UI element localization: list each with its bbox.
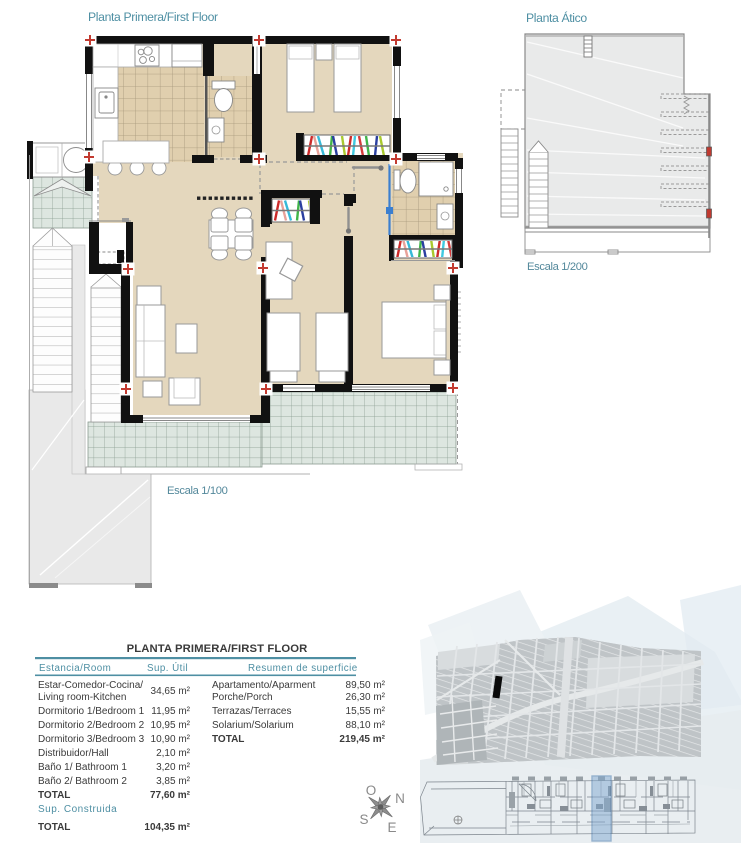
svg-text:10,95 m²: 10,95 m² <box>151 720 191 731</box>
svg-text:Planta Primera/First Floor: Planta Primera/First Floor <box>88 10 218 24</box>
svg-text:Estar-Comedor-Cocina/: Estar-Comedor-Cocina/ <box>38 680 143 691</box>
svg-text:Sup. Construida: Sup. Construida <box>38 804 117 815</box>
svg-text:89,50 m²: 89,50 m² <box>346 680 386 691</box>
svg-text:10,90 m²: 10,90 m² <box>151 734 191 745</box>
svg-text:15,55 m²: 15,55 m² <box>346 706 386 717</box>
svg-text:PLANTA PRIMERA/FIRST FLOOR: PLANTA PRIMERA/FIRST FLOOR <box>127 643 308 655</box>
svg-text:Baño 1/ Bathroom 1: Baño 1/ Bathroom 1 <box>38 762 127 773</box>
svg-text:2,10 m²: 2,10 m² <box>156 748 191 759</box>
svg-text:Dormitorio 2/Bedroom 2: Dormitorio 2/Bedroom 2 <box>38 720 145 731</box>
svg-text:Sup. Útil: Sup. Útil <box>147 663 188 674</box>
svg-text:26,30 m²: 26,30 m² <box>346 692 386 703</box>
svg-text:Solarium/Solarium: Solarium/Solarium <box>212 720 294 731</box>
svg-text:O: O <box>366 783 377 798</box>
svg-text:Distribuidor/Hall: Distribuidor/Hall <box>38 748 109 759</box>
svg-text:Baño 2/ Bathroom 2: Baño 2/ Bathroom 2 <box>38 776 127 787</box>
svg-text:Porche/Porch: Porche/Porch <box>212 692 273 703</box>
svg-text:TOTAL: TOTAL <box>212 734 244 745</box>
svg-text:TOTAL: TOTAL <box>38 790 70 801</box>
svg-text:3,85 m²: 3,85 m² <box>156 776 191 787</box>
svg-text:Dormitorio 1/Bedroom 1: Dormitorio 1/Bedroom 1 <box>38 706 145 717</box>
svg-text:11,95 m²: 11,95 m² <box>151 706 190 717</box>
svg-text:Apartamento/Aparment: Apartamento/Aparment <box>212 680 316 691</box>
svg-text:219,45 m²: 219,45 m² <box>339 734 385 745</box>
svg-text:E: E <box>387 820 396 835</box>
svg-text:88,10 m²: 88,10 m² <box>346 720 386 731</box>
svg-text:Escala 1/200: Escala 1/200 <box>527 261 588 273</box>
svg-text:Planta Ático: Planta Ático <box>526 10 587 25</box>
svg-text:Escala 1/100: Escala 1/100 <box>167 485 228 497</box>
svg-text:104,35 m²: 104,35 m² <box>144 822 190 833</box>
svg-text:S: S <box>359 812 368 827</box>
svg-text:34,65 m²: 34,65 m² <box>151 686 191 697</box>
svg-text:TOTAL: TOTAL <box>38 822 70 833</box>
svg-text:77,60 m²: 77,60 m² <box>150 790 191 801</box>
svg-text:Living room-Kitchen: Living room-Kitchen <box>38 692 126 703</box>
svg-text:3,20 m²: 3,20 m² <box>156 762 191 773</box>
svg-text:Resumen de superficie: Resumen de superficie <box>248 663 358 674</box>
svg-text:Terrazas/Terraces: Terrazas/Terraces <box>212 706 291 717</box>
svg-text:Dormitorio 3/Bedroom 3: Dormitorio 3/Bedroom 3 <box>38 734 145 745</box>
svg-text:Estancia/Room: Estancia/Room <box>39 663 111 674</box>
svg-text:N: N <box>395 791 405 806</box>
